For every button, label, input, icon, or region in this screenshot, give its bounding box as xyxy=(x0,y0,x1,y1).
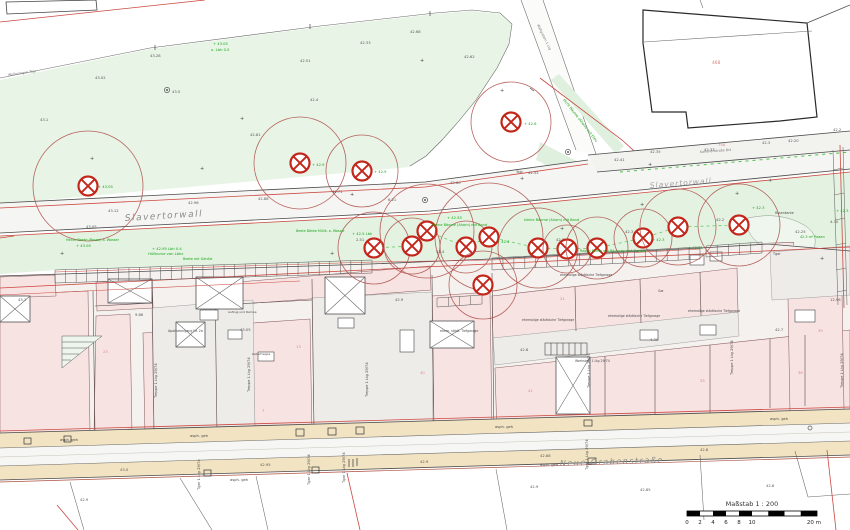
annotation-label: 40 xyxy=(420,371,425,375)
annotation-label: Treppe 1 Ltg 29/74 xyxy=(154,363,158,399)
cadastral-map: 43.2842.8143.542.442.6842.5142.3342.6243… xyxy=(0,0,850,530)
annotation-label: 42.8 xyxy=(766,484,775,488)
annotation-label: 758 xyxy=(718,143,726,147)
annotation-label: + 42.6 xyxy=(524,122,537,126)
annotation-label: 39 xyxy=(818,329,823,333)
annotation-label: 42.85 xyxy=(640,488,651,492)
annotation-label: Treppe 1 Ltg 29/74 xyxy=(587,353,591,389)
scale-tick-label: 6 xyxy=(724,520,728,526)
annotation-label: 42.3 m² Rasen xyxy=(800,235,825,239)
annotation-label: + xyxy=(640,202,644,208)
annotation-label: 42.8 xyxy=(520,348,529,352)
annotation-label: 43.5 xyxy=(172,90,181,94)
annotation-label: 9.86 xyxy=(135,313,144,317)
annotation-label: ehemalige städtische Tiefgarage xyxy=(560,273,612,277)
annotation-label: 42.96 xyxy=(188,201,199,205)
annotation-label: Treppe 1 Ltg 29/74 xyxy=(730,340,734,376)
annotation-label: 42.81 xyxy=(250,133,261,137)
annotation-label: Treppe 1 Ltg 29/74 xyxy=(840,353,844,389)
annotation-label: Rasen Beete mit Bäumen und Gehölz xyxy=(580,249,646,253)
annotation-label: u. Lbh 0.5 xyxy=(211,48,230,52)
annotation-label: Tgar 1 Ltg 29/74 xyxy=(307,454,311,486)
scale-tick-label: 4 xyxy=(711,520,715,526)
annotation-label: asph. geh xyxy=(230,478,249,482)
annotation-label: Beete Bänke Müllk. a. Wasser xyxy=(296,229,345,233)
annotation-label: 4.30 xyxy=(650,338,659,342)
annotation-label: 43.0 xyxy=(120,468,129,472)
annotation-label: ehemalige städtische Tiefgarage xyxy=(522,318,574,322)
annotation-label: 42.33 xyxy=(360,41,371,45)
annotation-label: 42.41 xyxy=(614,158,625,162)
annotation-label: 42.88 xyxy=(258,197,269,201)
scale-tick-label: 8 xyxy=(737,520,741,526)
scale-bar-segment xyxy=(713,511,726,516)
annotation-label: 42.8 xyxy=(700,448,709,452)
annotation-label: + 42.3 xyxy=(652,238,665,242)
annotation-label: + xyxy=(200,166,204,172)
annotation-label: 6.21 xyxy=(388,198,396,202)
annotation-label: Tgar 1 Ltg 29/74 xyxy=(197,459,201,491)
large-building xyxy=(643,0,850,128)
annotation-label: + 43.05 xyxy=(98,185,113,189)
annotation-label: + 42.4 xyxy=(497,240,510,244)
scale-title: Maßstab 1 : 200 xyxy=(726,500,779,508)
annotation-label: 42.51 xyxy=(300,59,311,63)
annotation-label: Werkstatt 1 Ltg 29/74 xyxy=(575,359,610,363)
annotation-label: asph. geh xyxy=(190,434,209,438)
annotation-label: 468 xyxy=(712,60,721,66)
annotation-label: + 42.35 xyxy=(688,246,703,250)
annotation-label: Aufzug und Rampe xyxy=(228,310,257,314)
annotation-label: 42.7 xyxy=(775,328,784,332)
annotation-label: 42.9 xyxy=(530,485,539,489)
annotation-label: + xyxy=(520,176,524,182)
annotation-label: 43.12 xyxy=(108,209,119,213)
scale-tick-label: 10 xyxy=(749,520,756,526)
annotation-label: 12.96 xyxy=(830,298,841,302)
annotation-label: 42.95 xyxy=(260,463,271,467)
annotation-label: + 42.95 Lbh 0.4 xyxy=(152,247,182,251)
annotation-label: + xyxy=(90,156,94,162)
annotation-label: 42.62 xyxy=(464,55,475,59)
scale-bar: Maßstab 1 : 200 024681020 m xyxy=(685,500,821,526)
annotation-label: 42.4 xyxy=(310,98,319,102)
annotation-label: ehemalige städtische Tiefgarage xyxy=(688,309,740,313)
annotation-label: + 42.55 xyxy=(447,216,462,220)
annotation-label: 2.51 xyxy=(356,238,364,242)
annotation-label: Kellertreppe xyxy=(252,352,270,356)
annotation-label: Hecke Beete (Rosen) a. Wasser xyxy=(66,238,120,242)
annotation-label: Gar xyxy=(658,289,664,293)
annotation-label: 43.1 xyxy=(40,118,48,122)
scale-bar-segment xyxy=(801,511,817,516)
annotation-label: + 42.9 xyxy=(374,170,387,174)
scale-bar-segment xyxy=(687,511,700,516)
annotation-label: asph. geh xyxy=(495,425,514,429)
annotation-label: 41 xyxy=(528,389,533,393)
annotation-label: ehemalige städtische Tiefgarage xyxy=(608,314,660,318)
annotation-label: 42.2 xyxy=(833,128,841,132)
annotation-label: 42.71 xyxy=(332,190,343,194)
annotation-label: + 42.9 xyxy=(312,163,325,167)
scale-end-label: 20 m xyxy=(807,520,821,526)
annotation-label: 42.3 xyxy=(762,141,771,145)
scale-bar-segment xyxy=(739,511,752,516)
annotation-label: 42.9 xyxy=(420,460,429,464)
annotation-label: 4.30 xyxy=(830,220,839,224)
annotation-label: 42.35 xyxy=(650,150,661,154)
annotation-label: 42.2 xyxy=(716,218,724,222)
park-area xyxy=(0,10,534,204)
annotation-label: + xyxy=(820,256,824,262)
annotation-label: Hüllkurve von Lbhz xyxy=(148,252,183,256)
annotation-label: + 42.3 xyxy=(836,209,849,213)
annotation-label: + xyxy=(240,116,244,122)
annotation-label: 42.60 xyxy=(450,181,461,185)
annotation-label: 36 xyxy=(798,371,803,375)
annotation-label: 42.20 xyxy=(788,139,799,143)
scale-bar-segment xyxy=(768,511,784,516)
annotation-label: 42.88 xyxy=(540,454,551,458)
annotation-label: 43.02 xyxy=(95,76,106,80)
annotation-label: 13 xyxy=(296,345,301,349)
annotation-label: kleine Bäume (Ahorn) mit Band xyxy=(524,218,579,222)
annotation-label: 43.05 xyxy=(86,225,97,229)
annotation-label: 21 xyxy=(560,297,565,301)
annotation-label: + xyxy=(350,192,354,198)
annotation-label: + xyxy=(330,251,334,257)
annotation-label: 42.3 xyxy=(625,230,634,234)
annotation-label: 42.9 xyxy=(80,498,89,502)
annotation-label: 42.25 xyxy=(795,230,806,234)
annotation-label: + xyxy=(500,88,504,94)
city-block xyxy=(0,243,850,437)
annotation-label: Tgar xyxy=(772,252,781,256)
scale-tick-label: 2 xyxy=(698,520,702,526)
annotation-label: 43.05 xyxy=(240,328,251,332)
annotation-label: 42.68 xyxy=(410,30,421,34)
annotation-label: Rasenkante xyxy=(775,211,794,215)
annotation-label: + 43.05 xyxy=(76,244,91,248)
annotation-label: + xyxy=(735,191,739,197)
annotation-label: + xyxy=(768,178,772,184)
annotation-label: ehem. städt. Tiefgarage xyxy=(440,329,478,333)
annotation-label: + 42.5 Lbh xyxy=(352,232,373,236)
annotation-label: Treppe 1 Ltg 29/74 xyxy=(365,362,369,398)
annotation-label: Treppe 1 Ltg 29/74 xyxy=(247,357,251,393)
annotation-label: 43.28 xyxy=(150,54,161,58)
annotation-label: asph. geh xyxy=(60,438,79,442)
annotation-label: Apothekergang Nr. 2a xyxy=(168,329,203,333)
annotation-label: 42.9 xyxy=(395,298,404,302)
annotation-label: + xyxy=(60,251,64,257)
annotation-label: 43.1 xyxy=(18,298,26,302)
annotation-label: asph. geh xyxy=(540,463,559,467)
annotation-label: 42.4 xyxy=(436,250,445,254)
annotation-label: 23 xyxy=(103,350,108,354)
annotation-label: Beete mit Gehölz xyxy=(183,257,213,261)
scale-tick-label: 0 xyxy=(685,520,689,526)
annotation-label: 25 xyxy=(700,379,705,383)
annotation-label: Teja xyxy=(515,170,523,174)
annotation-label: 42.52 xyxy=(528,171,539,175)
annotation-label: asph. geh xyxy=(770,417,789,421)
annotation-label: 42.3 xyxy=(556,238,565,242)
annotation-label: + xyxy=(648,162,652,168)
annotation-label: + xyxy=(560,226,564,232)
annotation-label: + 43.05 xyxy=(213,42,228,46)
annotation-label: Tgar 1 Ltg 29/74 xyxy=(342,452,346,484)
annotation-label: + 42.3 xyxy=(752,206,765,210)
annotation-label: + xyxy=(420,58,424,64)
annotation-label: kleine Bäume (Ahorn) mit Band xyxy=(432,223,487,227)
